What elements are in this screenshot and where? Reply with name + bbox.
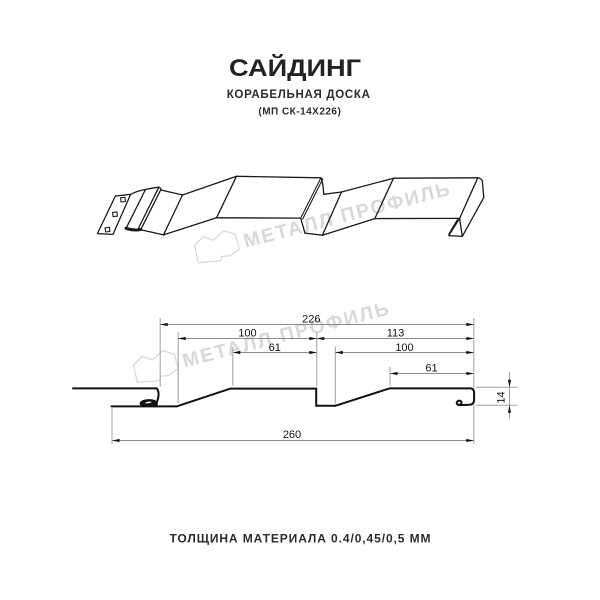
svg-text:61: 61 bbox=[269, 342, 281, 354]
svg-text:ТОЛЩИНА МАТЕРИАЛА 0.4/0,45/0,5: ТОЛЩИНА МАТЕРИАЛА 0.4/0,45/0,5 ММ bbox=[170, 531, 431, 545]
svg-text:14: 14 bbox=[496, 391, 508, 403]
svg-text:100: 100 bbox=[238, 328, 256, 340]
svg-text:САЙДИНГ: САЙДИНГ bbox=[229, 54, 361, 82]
svg-text:61: 61 bbox=[425, 362, 437, 374]
svg-text:100: 100 bbox=[395, 342, 413, 354]
svg-text:(МП СК-14Х226): (МП СК-14Х226) bbox=[258, 106, 340, 117]
svg-text:260: 260 bbox=[283, 429, 301, 441]
svg-text:113: 113 bbox=[387, 328, 405, 340]
svg-text:226: 226 bbox=[302, 313, 320, 325]
svg-text:КОРАБЕЛЬНАЯ ДОСКА: КОРАБЕЛЬНАЯ ДОСКА bbox=[227, 89, 370, 101]
